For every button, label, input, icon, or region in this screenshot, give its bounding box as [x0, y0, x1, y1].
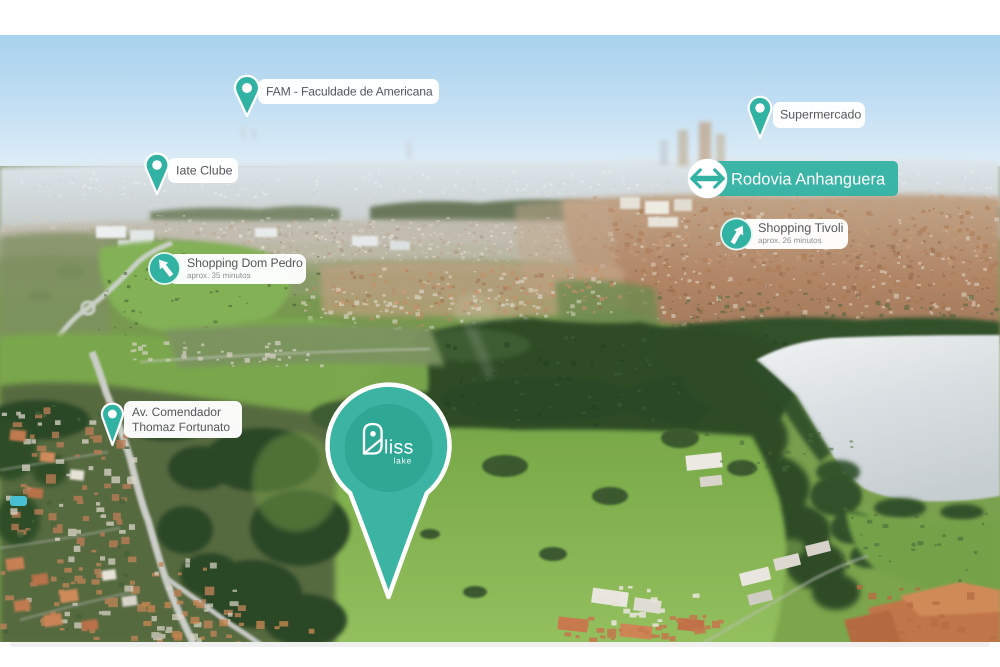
- svg-text:lake: lake: [394, 456, 413, 466]
- svg-text:Rodovia Anhanguera: Rodovia Anhanguera: [731, 171, 886, 189]
- svg-text:FAM - Faculdade de Americana: FAM - Faculdade de Americana: [266, 85, 433, 99]
- svg-text:aprox. 35 minutos: aprox. 35 minutos: [187, 271, 251, 280]
- svg-text:Thomaz Fortunato: Thomaz Fortunato: [132, 420, 230, 434]
- svg-text:Shopping Tivoli: Shopping Tivoli: [758, 221, 843, 235]
- svg-text:Shopping Dom Pedro: Shopping Dom Pedro: [187, 256, 303, 270]
- svg-text:aprox. 26 minutos: aprox. 26 minutos: [758, 236, 822, 245]
- svg-text:Iate Clube: Iate Clube: [176, 164, 233, 178]
- svg-text:Av. Comendador: Av. Comendador: [132, 405, 221, 419]
- svg-text:Supermercado: Supermercado: [780, 108, 861, 122]
